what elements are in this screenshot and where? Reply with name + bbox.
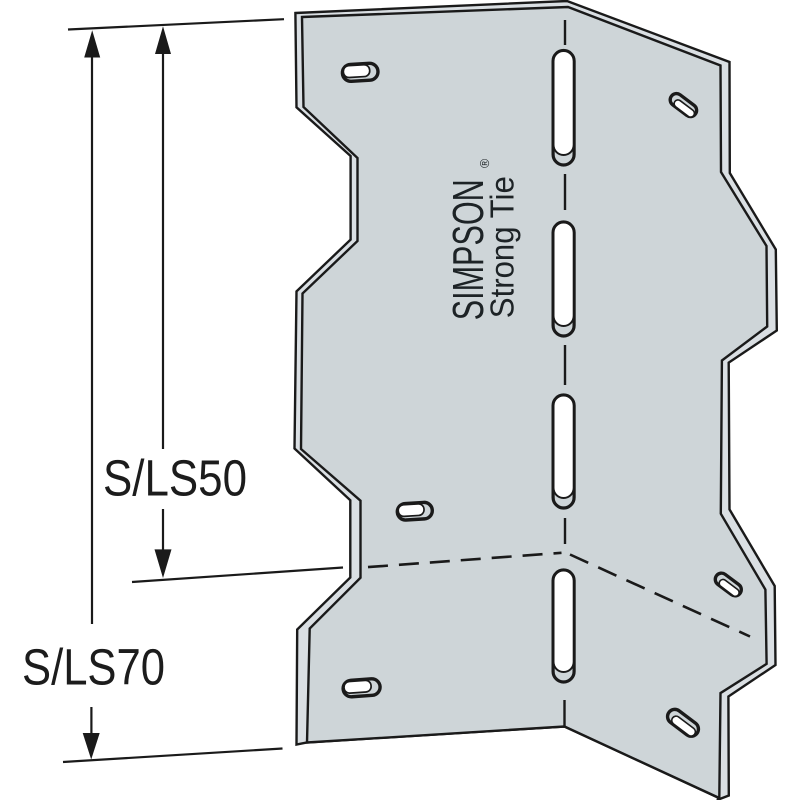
svg-text:Strong Tie: Strong Tie (484, 176, 521, 318)
svg-text:®: ® (478, 158, 492, 168)
svg-text:S/LS70: S/LS70 (22, 639, 165, 696)
svg-text:S/LS50: S/LS50 (103, 450, 247, 507)
